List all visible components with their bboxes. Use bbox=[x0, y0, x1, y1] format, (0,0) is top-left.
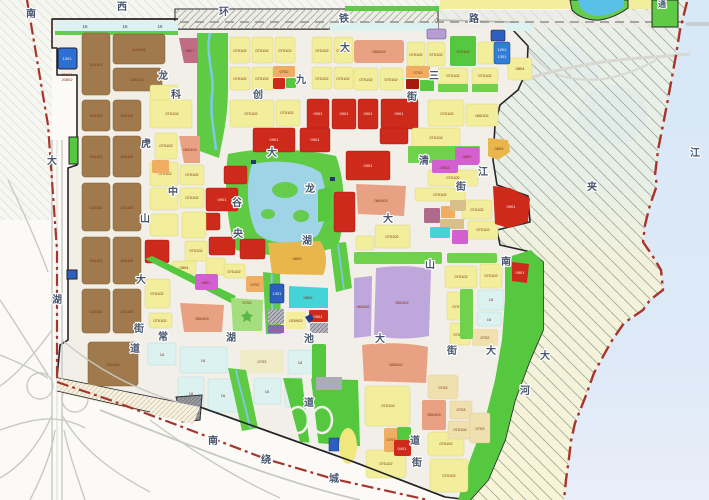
svg-text:070102: 070102 bbox=[159, 143, 173, 148]
svg-text:南: 南 bbox=[208, 434, 218, 447]
svg-text:070102: 070102 bbox=[442, 473, 456, 478]
svg-text:16: 16 bbox=[157, 24, 163, 29]
svg-text:大: 大 bbox=[136, 273, 146, 286]
svg-text:1301: 1301 bbox=[63, 56, 73, 61]
svg-text:0702: 0702 bbox=[481, 335, 491, 340]
svg-text:070102: 070102 bbox=[185, 172, 199, 177]
svg-text:大: 大 bbox=[47, 154, 57, 167]
svg-text:0702: 0702 bbox=[280, 69, 290, 74]
svg-text:0901: 0901 bbox=[516, 270, 526, 275]
svg-text:070102: 070102 bbox=[478, 73, 492, 78]
svg-text:16: 16 bbox=[201, 358, 206, 363]
svg-text:070102: 070102 bbox=[429, 135, 443, 140]
svg-text:070102: 070102 bbox=[255, 76, 269, 81]
svg-text:0703: 0703 bbox=[243, 300, 253, 305]
svg-text:城: 城 bbox=[329, 472, 339, 485]
svg-text:铁: 铁 bbox=[339, 12, 349, 25]
svg-text:0901: 0901 bbox=[364, 111, 374, 116]
svg-text:通: 通 bbox=[658, 0, 666, 9]
svg-text:100101: 100101 bbox=[89, 113, 103, 118]
svg-text:080403: 080403 bbox=[374, 198, 388, 203]
svg-text:1301: 1301 bbox=[273, 291, 283, 296]
svg-text:16: 16 bbox=[221, 393, 226, 398]
svg-text:080403: 080403 bbox=[372, 49, 386, 54]
svg-text:070102: 070102 bbox=[429, 52, 443, 57]
svg-text:070102: 070102 bbox=[244, 111, 258, 116]
svg-text:070102: 070102 bbox=[189, 248, 203, 253]
svg-text:070102: 070102 bbox=[165, 111, 179, 116]
svg-text:100101: 100101 bbox=[89, 62, 103, 67]
svg-text:创: 创 bbox=[252, 88, 263, 101]
svg-text:道: 道 bbox=[304, 396, 314, 409]
svg-text:谷: 谷 bbox=[232, 196, 243, 209]
svg-text:0901: 0901 bbox=[507, 204, 517, 209]
svg-text:070102: 070102 bbox=[433, 192, 447, 197]
svg-text:070102: 070102 bbox=[153, 318, 167, 323]
svg-text:清: 清 bbox=[419, 154, 429, 167]
svg-text:0804: 0804 bbox=[180, 265, 190, 270]
svg-text:科: 科 bbox=[171, 88, 181, 101]
svg-text:070102: 070102 bbox=[359, 77, 373, 82]
svg-text:南: 南 bbox=[501, 255, 511, 268]
svg-text:道: 道 bbox=[410, 434, 420, 447]
svg-text:070102: 070102 bbox=[453, 427, 467, 432]
svg-text:0901: 0901 bbox=[314, 111, 324, 116]
svg-text:100101: 100101 bbox=[120, 113, 134, 118]
svg-text:河: 河 bbox=[520, 385, 530, 397]
svg-text:夹: 夹 bbox=[587, 180, 597, 193]
svg-text:070102: 070102 bbox=[470, 207, 484, 212]
svg-text:央: 央 bbox=[233, 227, 244, 240]
svg-text:街: 街 bbox=[411, 456, 422, 469]
svg-text:16: 16 bbox=[122, 24, 128, 29]
svg-text:16: 16 bbox=[298, 360, 303, 365]
svg-text:街: 街 bbox=[133, 322, 144, 335]
svg-text:街: 街 bbox=[455, 180, 466, 193]
svg-text:070102: 070102 bbox=[385, 234, 399, 239]
svg-text:大: 大 bbox=[540, 349, 550, 362]
svg-text:070102: 070102 bbox=[233, 48, 247, 53]
svg-text:大: 大 bbox=[340, 41, 350, 54]
svg-text:070102: 070102 bbox=[185, 195, 199, 200]
svg-text:070102: 070102 bbox=[150, 291, 164, 296]
svg-text:16: 16 bbox=[265, 389, 270, 394]
svg-text:080402: 080402 bbox=[389, 362, 403, 367]
svg-text:100101: 100101 bbox=[120, 309, 134, 314]
svg-text:中: 中 bbox=[168, 185, 178, 198]
svg-text:池: 池 bbox=[304, 332, 314, 345]
svg-text:070102: 070102 bbox=[379, 461, 393, 466]
svg-text:070102: 070102 bbox=[315, 48, 329, 53]
svg-text:070102: 070102 bbox=[381, 403, 395, 408]
svg-text:020902: 020902 bbox=[289, 318, 303, 323]
svg-text:070102: 070102 bbox=[456, 49, 470, 54]
svg-text:20802: 20802 bbox=[61, 77, 73, 82]
svg-text:环: 环 bbox=[219, 6, 229, 18]
svg-text:1201: 1201 bbox=[498, 47, 508, 52]
svg-text:100101: 100101 bbox=[89, 258, 103, 263]
svg-text:大: 大 bbox=[267, 146, 277, 159]
svg-text:070102: 070102 bbox=[446, 175, 460, 180]
svg-text:绕: 绕 bbox=[261, 453, 271, 466]
svg-text:山: 山 bbox=[425, 258, 435, 271]
svg-text:100101: 100101 bbox=[89, 205, 103, 210]
svg-text:100101: 100101 bbox=[120, 258, 134, 263]
svg-text:16: 16 bbox=[160, 352, 165, 357]
svg-text:070102: 070102 bbox=[227, 269, 241, 274]
svg-text:0703: 0703 bbox=[476, 426, 486, 431]
svg-text:0901: 0901 bbox=[364, 163, 374, 168]
svg-text:070102: 070102 bbox=[409, 52, 423, 57]
svg-text:0401: 0401 bbox=[398, 446, 408, 451]
svg-text:0702: 0702 bbox=[251, 282, 261, 287]
svg-text:070102: 070102 bbox=[384, 77, 398, 82]
svg-text:0901: 0901 bbox=[395, 111, 405, 116]
svg-text:湖: 湖 bbox=[226, 331, 236, 344]
svg-text:街: 街 bbox=[406, 90, 417, 103]
svg-text:九: 九 bbox=[295, 73, 306, 86]
svg-text:0803: 0803 bbox=[495, 146, 505, 151]
svg-text:070102: 070102 bbox=[446, 73, 460, 78]
svg-text:080102: 080102 bbox=[475, 113, 489, 118]
svg-text:080403: 080403 bbox=[183, 147, 197, 152]
svg-text:龙: 龙 bbox=[157, 69, 168, 82]
svg-text:1301: 1301 bbox=[498, 54, 508, 59]
svg-text:大: 大 bbox=[375, 332, 385, 345]
svg-text:100101: 100101 bbox=[132, 47, 146, 52]
svg-text:16: 16 bbox=[487, 317, 492, 322]
svg-text:江: 江 bbox=[690, 146, 700, 159]
svg-text:0901: 0901 bbox=[340, 111, 350, 116]
svg-text:西: 西 bbox=[117, 1, 127, 13]
svg-text:龙: 龙 bbox=[304, 182, 315, 195]
svg-text:街: 街 bbox=[446, 344, 457, 357]
svg-text:100101: 100101 bbox=[89, 309, 103, 314]
svg-text:070102: 070102 bbox=[315, 76, 329, 81]
svg-text:070102: 070102 bbox=[233, 76, 247, 81]
svg-text:0901: 0901 bbox=[218, 197, 228, 202]
svg-text:070102: 070102 bbox=[439, 441, 453, 446]
svg-text:0807: 0807 bbox=[186, 48, 196, 53]
svg-text:070102: 070102 bbox=[484, 273, 498, 278]
svg-text:080403: 080403 bbox=[195, 316, 209, 321]
svg-text:0703: 0703 bbox=[457, 407, 467, 412]
svg-text:0802: 0802 bbox=[463, 154, 473, 159]
svg-text:16: 16 bbox=[82, 24, 88, 29]
svg-text:0801: 0801 bbox=[202, 280, 212, 285]
svg-text:大: 大 bbox=[486, 344, 496, 357]
svg-text:0702: 0702 bbox=[414, 70, 424, 75]
svg-text:湖: 湖 bbox=[52, 293, 62, 306]
svg-text:100101: 100101 bbox=[120, 205, 134, 210]
svg-text:080403: 080403 bbox=[427, 412, 441, 417]
svg-text:0703: 0703 bbox=[439, 385, 449, 390]
svg-text:常: 常 bbox=[158, 330, 168, 343]
svg-text:大: 大 bbox=[383, 212, 393, 225]
svg-text:070102: 070102 bbox=[280, 110, 294, 115]
svg-text:湖: 湖 bbox=[302, 234, 312, 247]
svg-text:三: 三 bbox=[429, 70, 439, 82]
svg-text:0806: 0806 bbox=[304, 295, 314, 300]
svg-text:100101: 100101 bbox=[130, 77, 144, 82]
svg-text:100101: 100101 bbox=[120, 154, 134, 159]
svg-text:070102: 070102 bbox=[454, 274, 468, 279]
svg-text:江: 江 bbox=[478, 165, 488, 178]
svg-text:080402: 080402 bbox=[356, 304, 370, 309]
svg-text:路: 路 bbox=[469, 12, 480, 25]
svg-text:070102: 070102 bbox=[336, 76, 350, 81]
svg-text:南: 南 bbox=[26, 7, 36, 20]
svg-text:070102: 070102 bbox=[278, 48, 292, 53]
svg-text:16: 16 bbox=[489, 297, 494, 302]
svg-text:100101: 100101 bbox=[106, 362, 120, 367]
svg-text:0901: 0901 bbox=[311, 137, 321, 142]
svg-text:0901: 0901 bbox=[314, 314, 324, 319]
svg-text:虎: 虎 bbox=[141, 137, 151, 150]
svg-text:070102: 070102 bbox=[255, 48, 269, 53]
svg-text:080402: 080402 bbox=[395, 300, 409, 305]
svg-text:070102: 070102 bbox=[476, 227, 490, 232]
svg-text:0812: 0812 bbox=[441, 165, 451, 170]
svg-text:0703: 0703 bbox=[258, 359, 268, 364]
svg-text:100101: 100101 bbox=[89, 154, 103, 159]
svg-text:0804: 0804 bbox=[516, 66, 526, 71]
svg-text:0803: 0803 bbox=[293, 256, 303, 261]
svg-text:山: 山 bbox=[140, 212, 150, 225]
svg-text:道: 道 bbox=[130, 342, 140, 355]
svg-text:070102: 070102 bbox=[440, 111, 454, 116]
svg-text:0901: 0901 bbox=[270, 137, 280, 142]
